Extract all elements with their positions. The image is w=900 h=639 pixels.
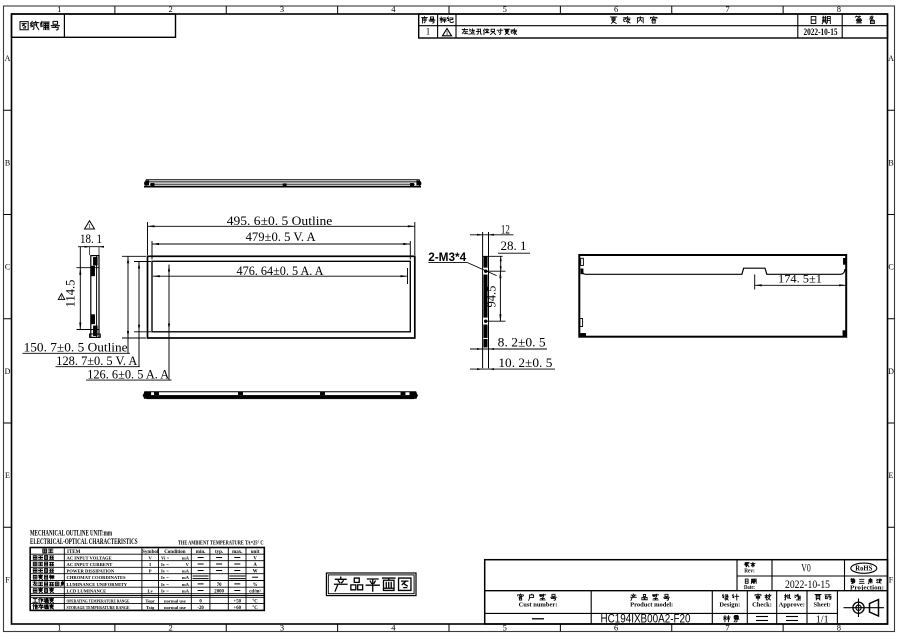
svg-text:2000: 2000 [214, 590, 224, 595]
svg-text:cd/m²: cd/m² [249, 589, 261, 595]
svg-text:2: 2 [168, 622, 172, 632]
svg-text:3: 3 [280, 4, 284, 14]
svg-text:E: E [5, 471, 10, 480]
svg-text:Symbol: Symbol [142, 550, 159, 555]
svg-text:2022-10-15: 2022-10-15 [804, 28, 838, 38]
svg-text:B: B [888, 158, 893, 167]
svg-text:THE AMBIENT TEMPERATURE TA=25°: THE AMBIENT TEMPERATURE TA=25° C [178, 540, 264, 547]
svg-text:2022-10-15: 2022-10-15 [785, 577, 830, 591]
svg-text:MECHANICAL OUTLINE UNIT:mm: MECHANICAL OUTLINE UNIT:mm [30, 529, 112, 538]
svg-text:1: 1 [446, 31, 449, 37]
svg-text:1: 1 [57, 622, 61, 632]
svg-text:6: 6 [614, 4, 618, 14]
svg-text:normal use: normal use [164, 605, 186, 610]
svg-text:ELECTRICAL-OPTICAL CHARACTERIS: ELECTRICAL-OPTICAL CHARACTERISTICS [30, 537, 138, 546]
svg-text:28. 1: 28. 1 [501, 239, 527, 253]
svg-text:Iv =: Iv = [161, 562, 169, 567]
svg-text:Approve:: Approve: [779, 602, 805, 609]
svg-text:LUMINANCE UNIFORMITY: LUMINANCE UNIFORMITY [67, 582, 128, 587]
svg-text:Iv =: Iv = [161, 582, 169, 587]
svg-text:mA: mA [182, 589, 190, 594]
svg-text:495. 6±0. 5 Outline: 495. 6±0. 5 Outline [227, 213, 333, 228]
svg-text:1/1: 1/1 [816, 614, 829, 625]
svg-text:A: A [253, 563, 257, 568]
svg-text:Vi =: Vi = [161, 556, 170, 561]
svg-text:8: 8 [837, 4, 841, 14]
svg-text:128. 7±0. 5 V. A: 128. 7±0. 5 V. A [56, 354, 137, 368]
svg-text:AC INPUT VOLTAGE: AC INPUT VOLTAGE [67, 556, 112, 561]
svg-text:D: D [888, 367, 894, 376]
svg-text:2: 2 [168, 4, 172, 14]
svg-text:Product model:: Product model: [630, 602, 673, 609]
svg-text:B: B [5, 158, 10, 167]
svg-text:V: V [253, 557, 257, 562]
svg-text:LCD LUMINANCE: LCD LUMINANCE [67, 589, 107, 594]
svg-text:10. 2±0. 5: 10. 2±0. 5 [498, 356, 552, 370]
svg-text:+60: +60 [234, 606, 242, 611]
svg-text:7: 7 [725, 4, 729, 14]
svg-text:174. 5±1: 174. 5±1 [778, 272, 822, 286]
svg-text:Cust number:: Cust number: [519, 602, 558, 609]
svg-text:mA: mA [182, 582, 190, 587]
svg-text:1: 1 [57, 4, 61, 14]
svg-text:Date:: Date: [744, 585, 755, 591]
svg-text:CHROMAT COORDINATES: CHROMAT COORDINATES [67, 575, 127, 580]
svg-text:8. 2±0. 5: 8. 2±0. 5 [498, 336, 546, 350]
svg-text:POWER DISSIPATION: POWER DISSIPATION [67, 569, 115, 574]
svg-text:E: E [889, 471, 894, 480]
svg-text:V0: V0 [801, 560, 811, 574]
svg-text:I: I [149, 562, 151, 567]
svg-text:Projection:: Projection: [850, 585, 884, 591]
svg-text:F: F [5, 575, 10, 584]
svg-text:°C: °C [252, 606, 258, 611]
svg-text:+50: +50 [234, 600, 242, 605]
svg-text:AC INPUT CURRENT: AC INPUT CURRENT [67, 562, 113, 567]
svg-text:70: 70 [217, 583, 222, 588]
svg-text:mA: mA [182, 569, 190, 574]
svg-text:2-M3*4: 2-M3*4 [428, 250, 466, 264]
svg-text:typ.: typ. [215, 550, 224, 555]
svg-text:479±0. 5 V. A: 479±0. 5 V. A [246, 229, 317, 244]
svg-text:C: C [5, 263, 10, 272]
svg-text:5: 5 [503, 4, 507, 14]
svg-text:F: F [889, 575, 894, 584]
svg-text:A: A [888, 54, 894, 63]
svg-text:unit: unit [251, 550, 260, 555]
svg-text:A: A [5, 54, 11, 63]
svg-text:HC194IXB00A2-F20: HC194IXB00A2-F20 [601, 613, 691, 625]
svg-text:°C: °C [252, 600, 258, 605]
svg-text:94.5: 94.5 [485, 286, 499, 308]
svg-text:Topr: Topr [145, 599, 155, 604]
svg-text:3: 3 [280, 622, 284, 632]
svg-text:Check:: Check: [752, 602, 772, 609]
svg-text:Tstg: Tstg [146, 605, 155, 610]
svg-text:max.: max. [232, 550, 243, 555]
svg-text:476. 64±0. 5 A. A: 476. 64±0. 5 A. A [237, 263, 325, 278]
svg-text:-20: -20 [197, 606, 204, 611]
svg-text:W: W [253, 570, 258, 575]
svg-text:%: % [253, 583, 258, 588]
svg-text:Iv =: Iv = [161, 589, 169, 594]
svg-text:P: P [149, 569, 152, 574]
svg-text:114.5: 114.5 [64, 280, 78, 308]
svg-text:Lv: Lv [148, 589, 154, 594]
svg-text:Sheet:: Sheet: [814, 602, 831, 609]
svg-text:C: C [888, 263, 893, 272]
svg-text:normal use: normal use [164, 599, 186, 604]
svg-text:Iv =: Iv = [161, 569, 169, 574]
svg-text:126. 6±0. 5 A. A: 126. 6±0. 5 A. A [87, 367, 169, 381]
svg-text:1: 1 [426, 27, 431, 37]
svg-text:Iv =: Iv = [161, 575, 169, 580]
svg-text:mA: mA [182, 575, 190, 580]
svg-text:Condition: Condition [164, 550, 186, 555]
svg-text:150. 7±0. 5 Outline: 150. 7±0. 5 Outline [24, 341, 128, 355]
svg-text:Design:: Design: [719, 602, 740, 609]
svg-text:OPERATING TEMPERATURE RANGE: OPERATING TEMPERATURE RANGE [67, 599, 130, 604]
svg-text:ITEM: ITEM [67, 550, 81, 555]
svg-text:min.: min. [196, 550, 206, 555]
svg-text:STORAGE TEMPERATURE RANGE: STORAGE TEMPERATURE RANGE [67, 605, 130, 610]
svg-text:mA: mA [182, 556, 190, 561]
svg-text:RoHS: RoHS [855, 565, 872, 573]
svg-text:Rev:: Rev: [744, 568, 755, 574]
svg-text:1: 1 [88, 224, 91, 230]
svg-text:D: D [5, 367, 11, 376]
svg-text:18. 1: 18. 1 [80, 232, 102, 246]
